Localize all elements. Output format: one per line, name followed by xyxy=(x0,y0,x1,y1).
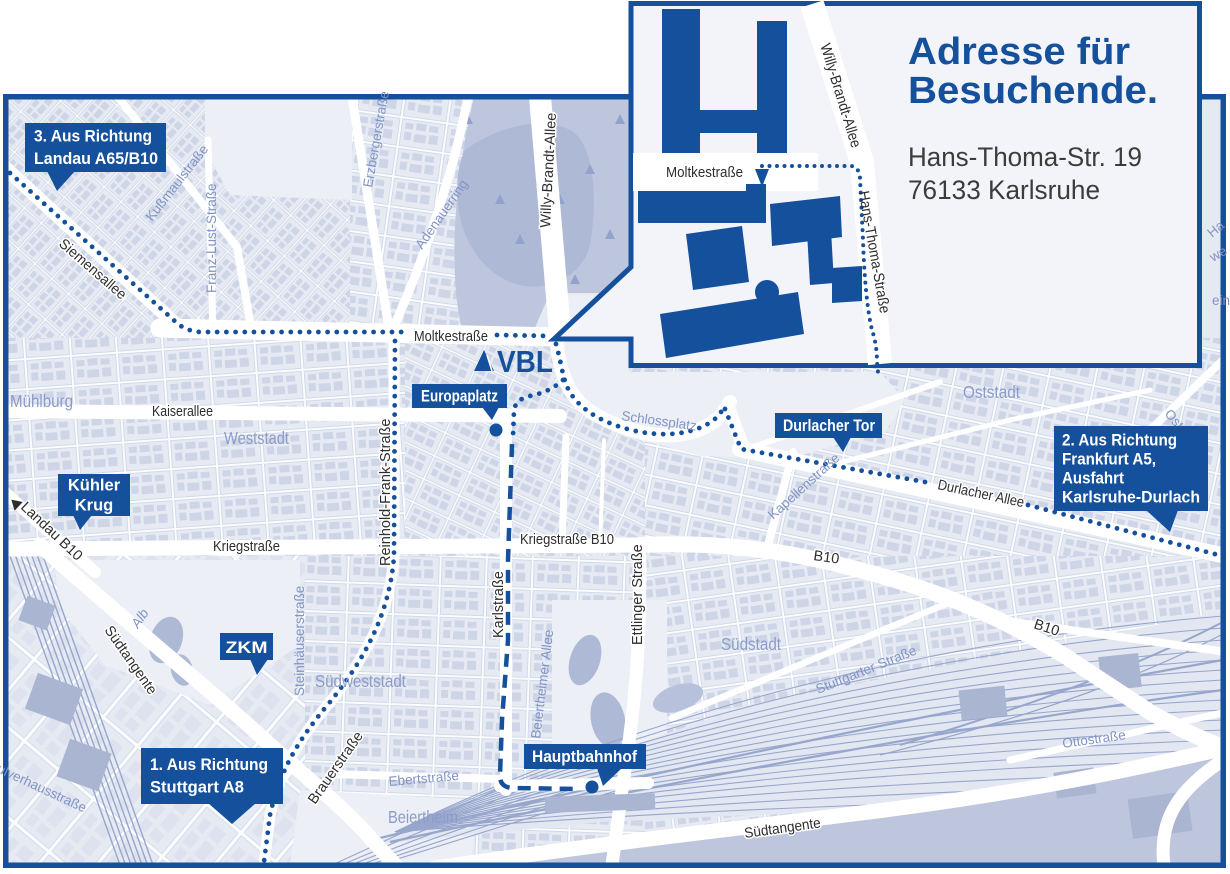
svg-text:Franz-Lust-Straße: Franz-Lust-Straße xyxy=(204,183,219,293)
svg-text:ein: ein xyxy=(1212,293,1230,308)
svg-text:Moltkestraße: Moltkestraße xyxy=(666,164,743,181)
svg-text:Hans-Thoma-Str. 19: Hans-Thoma-Str. 19 xyxy=(908,142,1142,172)
svg-text:Südweststadt: Südweststadt xyxy=(315,671,406,691)
svg-text:Kriegstraße: Kriegstraße xyxy=(213,539,280,555)
svg-text:Europaplatz: Europaplatz xyxy=(421,387,498,405)
svg-text:Durlacher Tor: Durlacher Tor xyxy=(783,417,875,435)
svg-text:Ettlinger Straße: Ettlinger Straße xyxy=(630,544,646,645)
svg-text:Ausfahrt: Ausfahrt xyxy=(1062,469,1124,487)
svg-text:1. Aus Richtung: 1. Aus Richtung xyxy=(150,756,268,774)
svg-text:Kriegstraße B10: Kriegstraße B10 xyxy=(520,532,614,548)
svg-text:Hauptbahnhof: Hauptbahnhof xyxy=(532,748,637,766)
svg-text:Beiertheim: Beiertheim xyxy=(388,807,458,827)
svg-text:Kaiserallee: Kaiserallee xyxy=(152,404,213,420)
svg-text:Oststadt: Oststadt xyxy=(963,382,1020,402)
svg-text:Moltkestraße: Moltkestraße xyxy=(414,329,488,345)
svg-text:Weststadt: Weststadt xyxy=(224,428,289,448)
svg-text:Krug: Krug xyxy=(75,496,114,514)
svg-text:Besuchende.: Besuchende. xyxy=(908,70,1158,112)
svg-text:Karlstraße: Karlstraße xyxy=(491,571,507,638)
svg-text:Adresse für: Adresse für xyxy=(908,31,1130,73)
svg-text:Stuttgart A8: Stuttgart A8 xyxy=(150,779,244,797)
svg-text:VBL: VBL xyxy=(497,344,553,379)
svg-text:2. Aus Richtung: 2. Aus Richtung xyxy=(1062,431,1177,449)
svg-text:Frankfurt A5,: Frankfurt A5, xyxy=(1062,450,1156,468)
svg-text:Kühler: Kühler xyxy=(68,476,121,494)
svg-text:Reinhold-Frank-Straße: Reinhold-Frank-Straße xyxy=(378,419,394,566)
svg-text:Südstadt: Südstadt xyxy=(721,634,781,654)
svg-text:ZKM: ZKM xyxy=(226,639,268,657)
svg-text:Steinhäuserstraße: Steinhäuserstraße xyxy=(292,586,307,696)
svg-text:Mühlburg: Mühlburg xyxy=(10,391,73,411)
svg-text:3. Aus Richtung: 3. Aus Richtung xyxy=(34,128,152,146)
svg-text:Karlsruhe-Durlach: Karlsruhe-Durlach xyxy=(1062,488,1200,506)
svg-text:76133 Karlsruhe: 76133 Karlsruhe xyxy=(908,175,1100,205)
svg-text:Landau A65/B10: Landau A65/B10 xyxy=(34,150,158,168)
